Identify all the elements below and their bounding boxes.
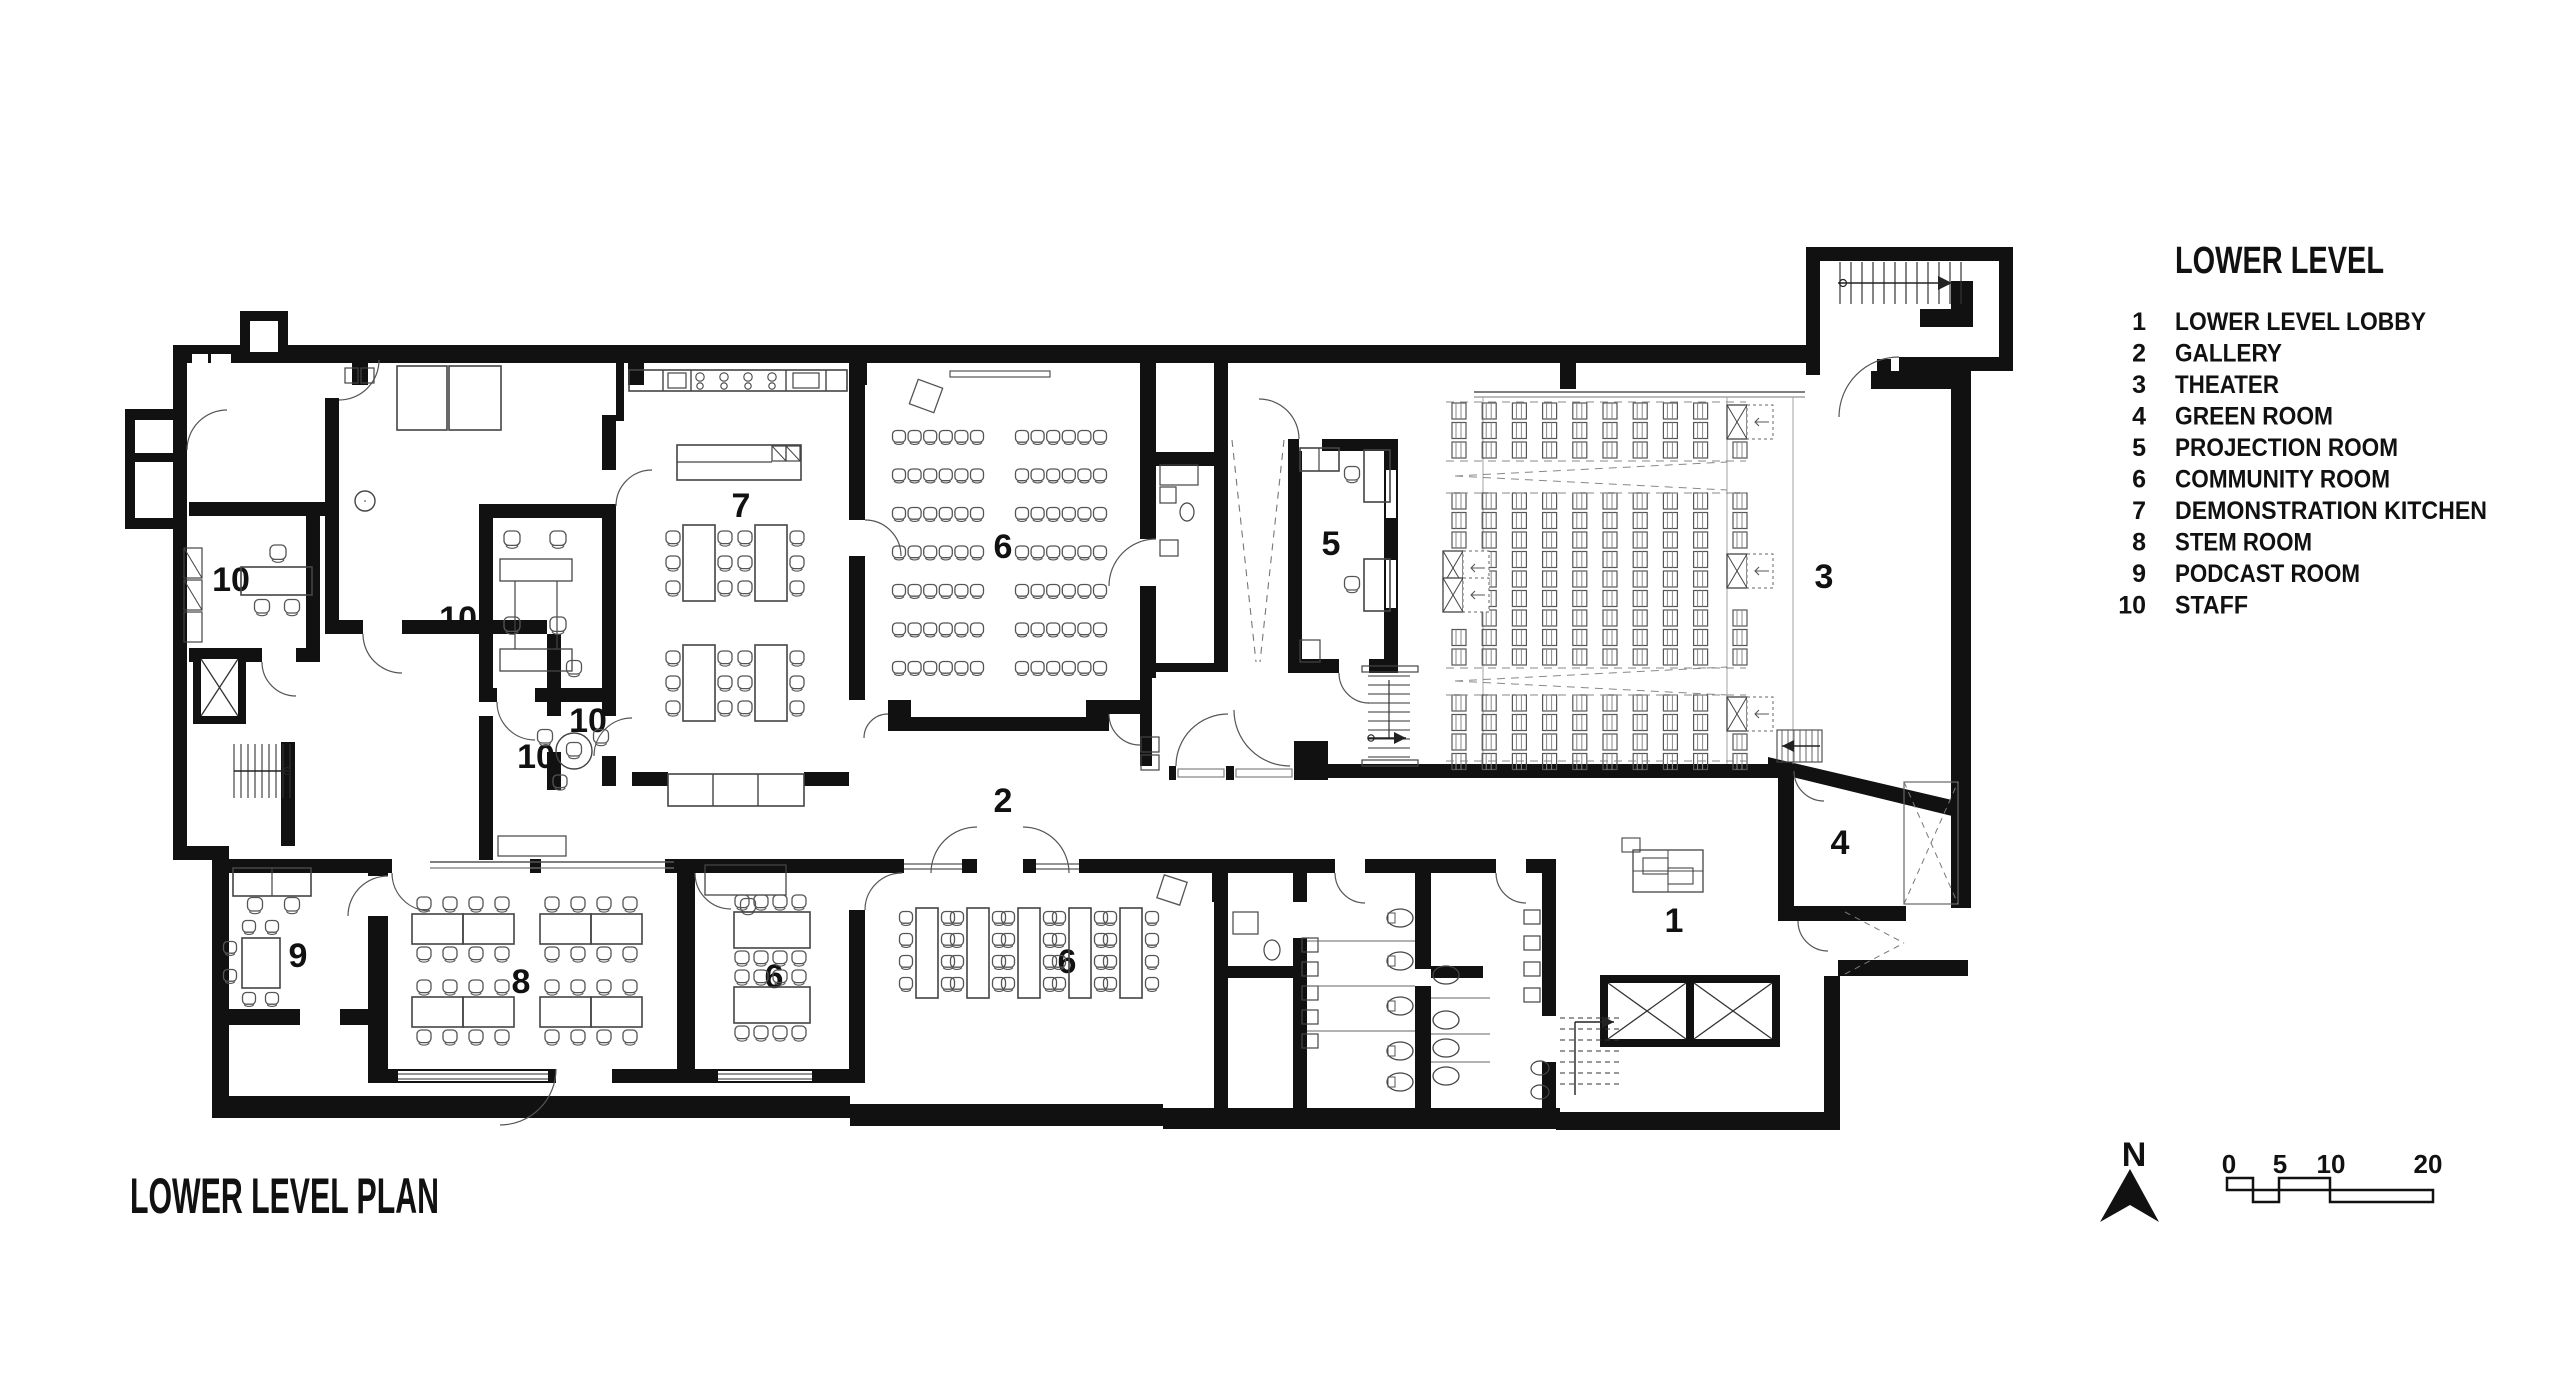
svg-text:5: 5 bbox=[2273, 1149, 2287, 1179]
svg-text:9: 9 bbox=[2132, 560, 2146, 588]
svg-text:10: 10 bbox=[2118, 592, 2146, 620]
svg-text:LOWER LEVEL: LOWER LEVEL bbox=[2175, 240, 2384, 282]
svg-text:6: 6 bbox=[2132, 466, 2146, 494]
svg-text:3: 3 bbox=[1815, 558, 1834, 596]
svg-text:THEATER: THEATER bbox=[2175, 371, 2279, 399]
svg-text:8: 8 bbox=[2132, 529, 2146, 557]
svg-text:1: 1 bbox=[1665, 902, 1684, 940]
svg-text:2: 2 bbox=[994, 782, 1013, 820]
svg-text:10: 10 bbox=[517, 738, 555, 776]
svg-text:6: 6 bbox=[994, 528, 1013, 566]
svg-text:4: 4 bbox=[2132, 403, 2146, 431]
svg-text:STAFF: STAFF bbox=[2175, 592, 2248, 620]
svg-text:10: 10 bbox=[2317, 1149, 2346, 1179]
svg-text:LOWER LEVEL PLAN: LOWER LEVEL PLAN bbox=[130, 1168, 439, 1224]
svg-text:7: 7 bbox=[732, 487, 751, 525]
svg-text:3: 3 bbox=[2132, 371, 2146, 399]
svg-text:10: 10 bbox=[439, 600, 477, 638]
svg-text:LOWER LEVEL LOBBY: LOWER LEVEL LOBBY bbox=[2175, 308, 2426, 336]
svg-text:5: 5 bbox=[2132, 434, 2146, 462]
svg-text:4: 4 bbox=[1831, 824, 1850, 862]
svg-text:GALLERY: GALLERY bbox=[2175, 340, 2282, 368]
svg-text:20: 20 bbox=[2414, 1149, 2443, 1179]
svg-text:1: 1 bbox=[2132, 308, 2146, 336]
svg-text:COMMUNITY ROOM: COMMUNITY ROOM bbox=[2175, 466, 2390, 494]
svg-text:GREEN ROOM: GREEN ROOM bbox=[2175, 403, 2333, 431]
svg-text:8: 8 bbox=[512, 963, 531, 1001]
svg-text:STEM ROOM: STEM ROOM bbox=[2175, 529, 2312, 557]
svg-text:10: 10 bbox=[569, 702, 607, 740]
svg-text:0: 0 bbox=[2222, 1149, 2236, 1179]
svg-text:PROJECTION ROOM: PROJECTION ROOM bbox=[2175, 434, 2398, 462]
svg-text:PODCAST ROOM: PODCAST ROOM bbox=[2175, 560, 2360, 588]
svg-text:N: N bbox=[2122, 1136, 2147, 1174]
svg-text:9: 9 bbox=[289, 937, 308, 975]
svg-text:DEMONSTRATION KITCHEN: DEMONSTRATION KITCHEN bbox=[2175, 497, 2487, 525]
svg-text:2: 2 bbox=[2132, 340, 2146, 368]
svg-text:7: 7 bbox=[2132, 497, 2146, 525]
svg-text:6: 6 bbox=[1058, 943, 1077, 981]
svg-text:5: 5 bbox=[1322, 525, 1341, 563]
